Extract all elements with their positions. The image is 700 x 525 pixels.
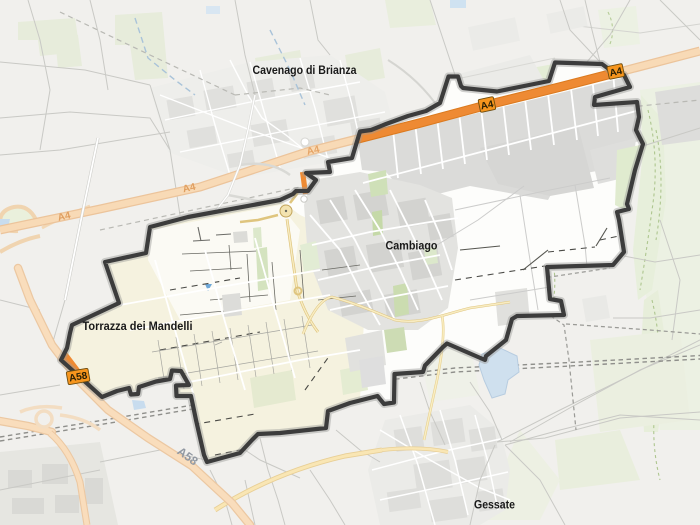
svg-text:Cambiago: Cambiago — [386, 239, 438, 253]
svg-text:Torrazza dei Mandelli: Torrazza dei Mandelli — [83, 319, 193, 333]
svg-text:Cavenago di Brianza: Cavenago di Brianza — [253, 63, 357, 77]
svg-text:Gessate: Gessate — [474, 498, 515, 512]
